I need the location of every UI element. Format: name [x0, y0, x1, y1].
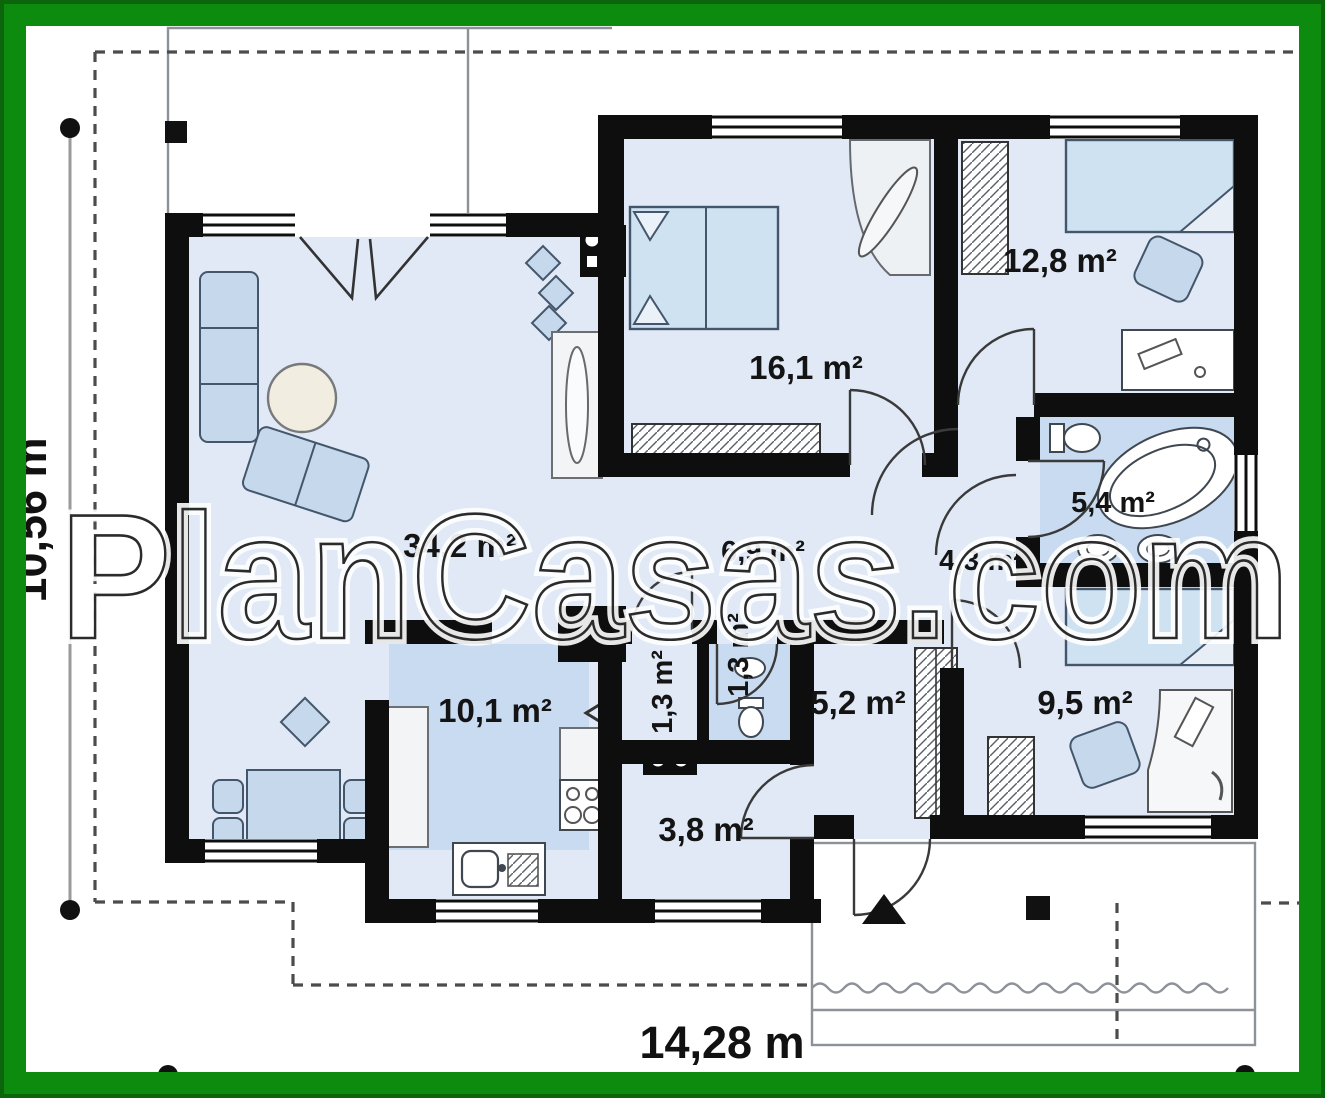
window — [1085, 815, 1211, 839]
desk — [1122, 330, 1234, 390]
floor-plan-page: 10,56 m 14,28 m 34,2 m² 16,1 m² 12,8 m² … — [0, 0, 1325, 1098]
sofa — [200, 272, 258, 442]
dishwasher — [508, 854, 538, 886]
toilet — [1064, 424, 1100, 452]
coffee-table — [268, 364, 336, 432]
stove — [560, 780, 604, 830]
kitchen-sink — [462, 851, 498, 887]
floor-plan-svg: 10,56 m 14,28 m 34,2 m² 16,1 m² 12,8 m² … — [0, 0, 1325, 1098]
window — [712, 115, 842, 139]
wardrobe — [632, 424, 820, 456]
watermark: PlanCasas.com PlanCasas.com — [60, 477, 1290, 676]
svg-text:PlanCasas.com: PlanCasas.com — [60, 477, 1290, 676]
wardrobe — [988, 737, 1034, 817]
room-label-entry-hall: 5,2 m² — [810, 684, 905, 721]
toilet-tank — [1050, 424, 1064, 452]
marker-square-icon — [165, 121, 187, 143]
window — [430, 213, 506, 237]
chair — [213, 780, 243, 813]
room-label-bedroom-low: 9,5 m² — [1037, 684, 1132, 721]
marker-square-icon — [1026, 896, 1050, 920]
room-label-bedroom-main: 16,1 m² — [749, 349, 863, 386]
window — [205, 839, 317, 863]
room-label-utility: 3,8 m² — [658, 811, 753, 848]
window — [203, 213, 295, 237]
toilet — [739, 707, 763, 737]
porch — [812, 843, 1255, 1045]
mouse — [1195, 367, 1205, 377]
window — [655, 899, 761, 923]
room-label-bedroom-top: 12,8 m² — [1003, 242, 1117, 279]
room-label-kitchen: 10,1 m² — [438, 692, 552, 729]
width-dimension-label: 14,28 m — [639, 1017, 804, 1068]
window — [1050, 115, 1180, 139]
window — [436, 899, 538, 923]
wardrobe — [962, 142, 1008, 274]
